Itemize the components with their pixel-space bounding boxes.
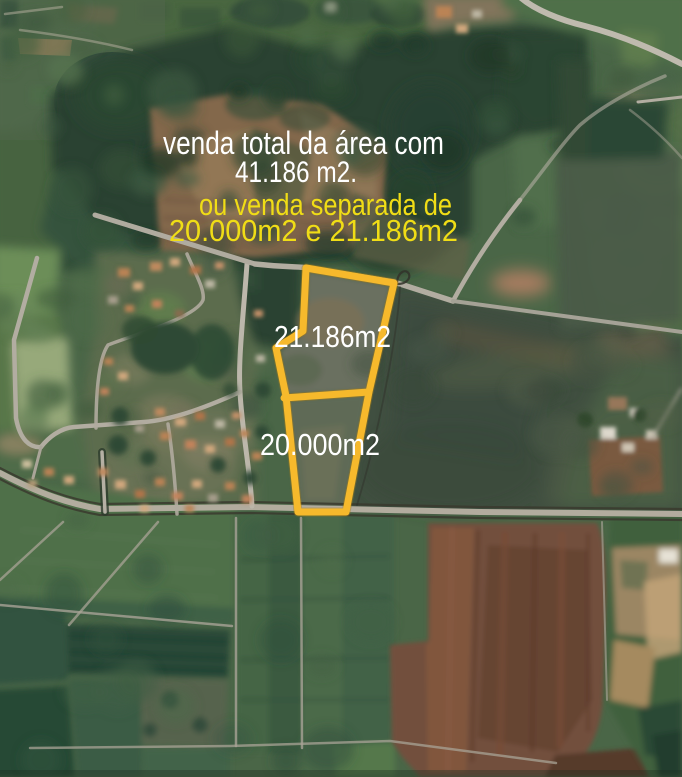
svg-text:20.000m2: 20.000m2: [260, 427, 380, 462]
svg-text:21.186m2: 21.186m2: [274, 319, 391, 354]
svg-text:41.186 m2.: 41.186 m2.: [235, 156, 357, 189]
svg-text:20.000m2 e 21.186m2: 20.000m2 e 21.186m2: [169, 213, 458, 248]
